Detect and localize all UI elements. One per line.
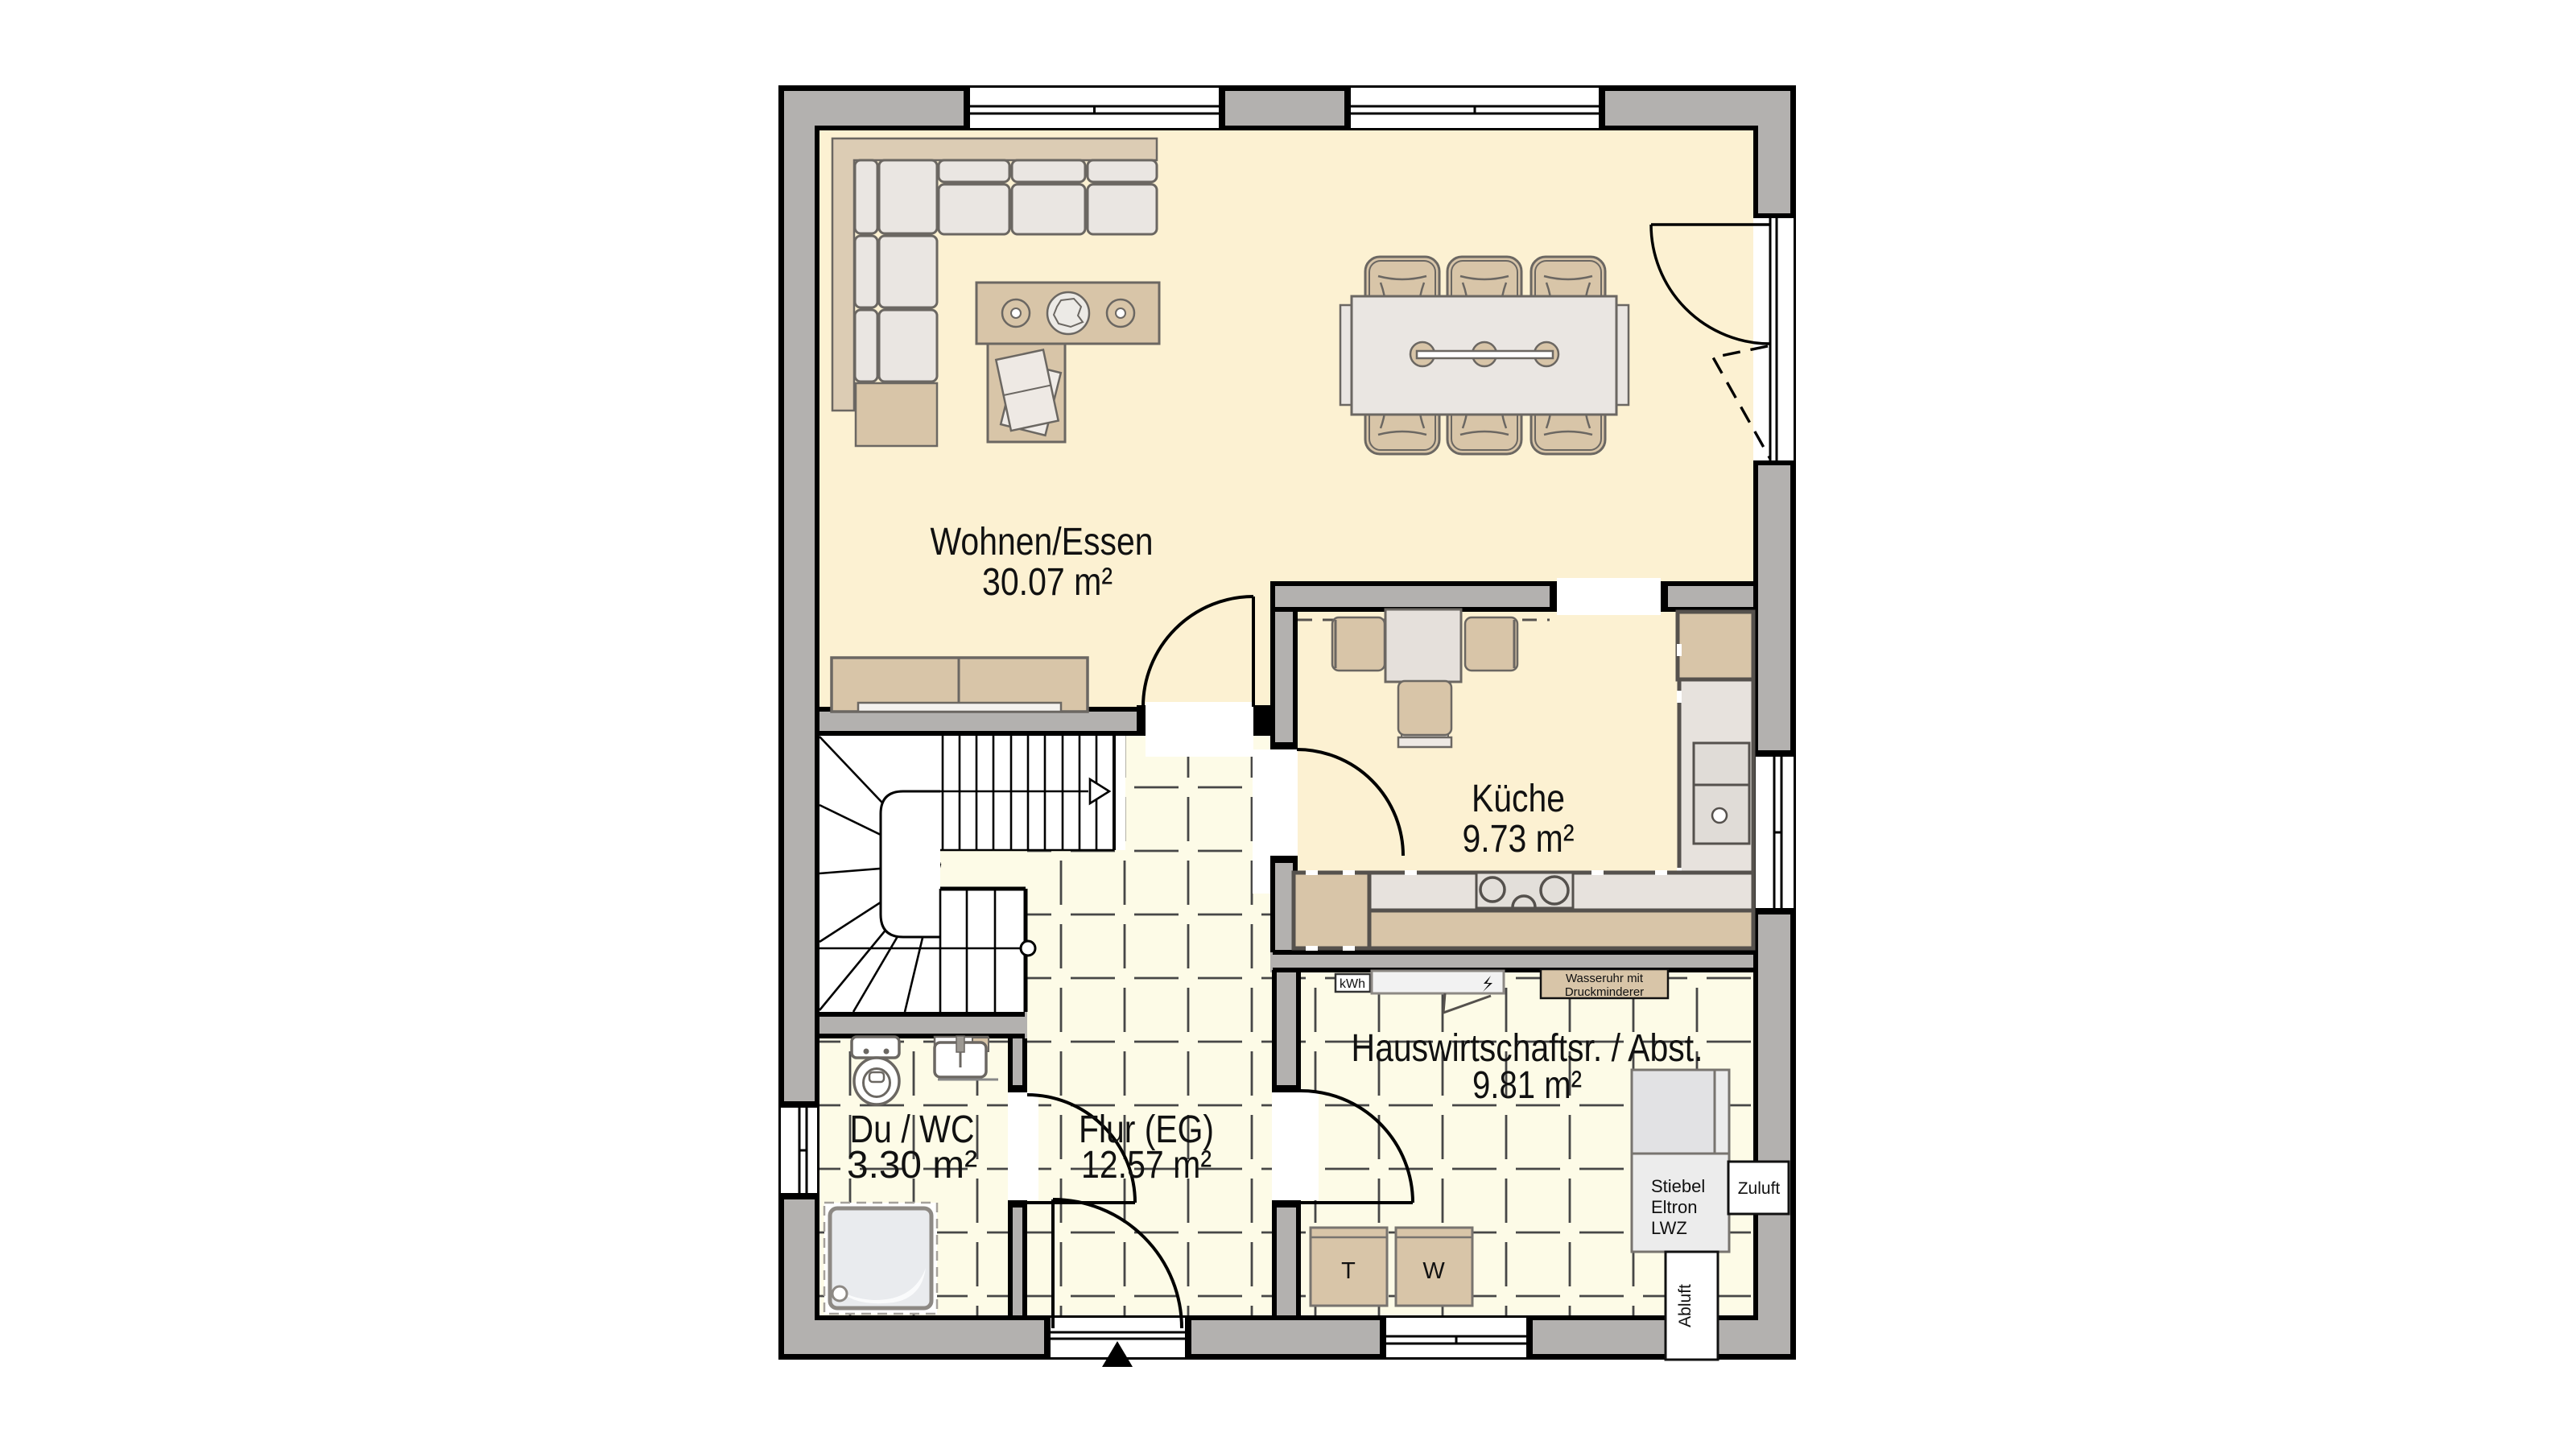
svg-text:T: T [1341,1258,1356,1284]
svg-text:W: W [1422,1258,1445,1284]
svg-text:Stiebel: Stiebel [1651,1176,1705,1196]
svg-text:Eltron: Eltron [1651,1197,1697,1217]
svg-text:Wasseruhr mit: Wasseruhr mit [1566,972,1644,985]
svg-text:Zuluft: Zuluft [1738,1179,1781,1198]
svg-text:Küche: Küche [1472,778,1565,820]
svg-text:9.81 m²: 9.81 m² [1472,1064,1582,1107]
svg-text:Wohnen/Essen: Wohnen/Essen [931,521,1154,563]
svg-text:3.30 m²: 3.30 m² [847,1144,977,1187]
svg-text:Druckminderer: Druckminderer [1565,985,1644,999]
svg-text:Abluft: Abluft [1676,1284,1695,1327]
svg-text:12.57 m²: 12.57 m² [1081,1144,1212,1187]
svg-text:kWh: kWh [1340,977,1365,991]
svg-text:30.07 m²: 30.07 m² [982,561,1113,604]
svg-text:LWZ: LWZ [1651,1218,1687,1238]
svg-text:9.73 m²: 9.73 m² [1463,818,1575,861]
